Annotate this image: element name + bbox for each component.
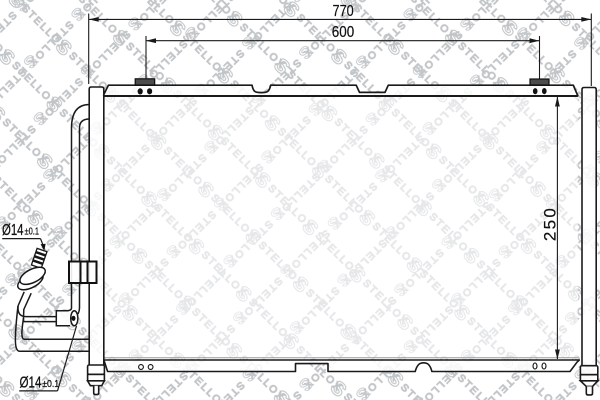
svg-text:±0.1: ±0.1 [42,379,59,390]
svg-text:600: 600 [332,24,355,41]
svg-text:250: 250 [541,208,560,241]
svg-text:770: 770 [333,3,354,20]
svg-text:±0.1: ±0.1 [25,227,40,238]
svg-text:Ø14: Ø14 [20,375,42,392]
svg-text:Ø14: Ø14 [2,222,24,239]
